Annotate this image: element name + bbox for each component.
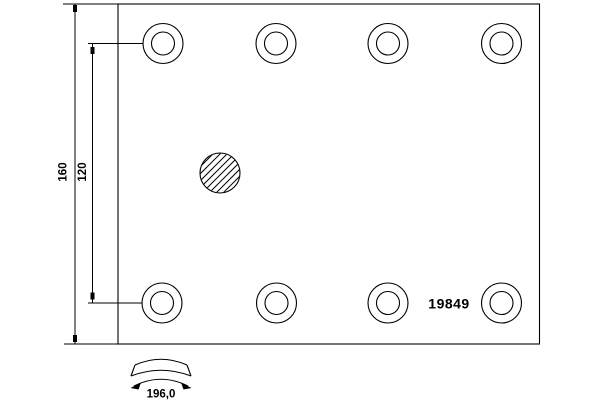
brake-lining-drawing: 160 120 19849 196,0	[0, 0, 600, 400]
dim-end-tick	[91, 47, 95, 54]
dim-end-tick	[91, 293, 95, 300]
arrowhead-left-icon	[131, 383, 142, 390]
rivet-hole-bottom-4	[482, 283, 522, 323]
dimension-arc-width: 196,0	[131, 379, 192, 400]
part-number: 19849	[428, 296, 469, 312]
dimension-rivet-row-spacing: 120	[77, 44, 143, 304]
arc-dimension-line	[134, 379, 188, 386]
rivet-hole-bottom-1	[142, 283, 182, 323]
dim-end-tick	[73, 335, 77, 342]
dim-label-120: 120	[77, 162, 89, 181]
rivet-hole-top-2	[256, 24, 296, 64]
band-inner-arc	[131, 370, 191, 376]
dim-label-196: 196,0	[147, 389, 176, 400]
rivet-hole-top-3	[368, 24, 408, 64]
rivet-hole-top-1	[143, 24, 183, 64]
dim-end-tick	[73, 5, 77, 12]
rivet-hole-bottom-2	[257, 283, 297, 323]
rivet-hole-top-4	[482, 24, 522, 64]
arrowhead-right-icon	[181, 383, 192, 390]
center-hole-hatched	[164, 145, 278, 203]
technical-drawing-canvas: 160 120 19849 196,0	[0, 0, 600, 400]
lining-outline	[118, 4, 540, 344]
dim-label-160: 160	[58, 162, 70, 181]
band-outer-arc	[135, 359, 187, 365]
curvature-symbol	[131, 359, 191, 376]
rivet-hole-bottom-3	[368, 283, 408, 323]
